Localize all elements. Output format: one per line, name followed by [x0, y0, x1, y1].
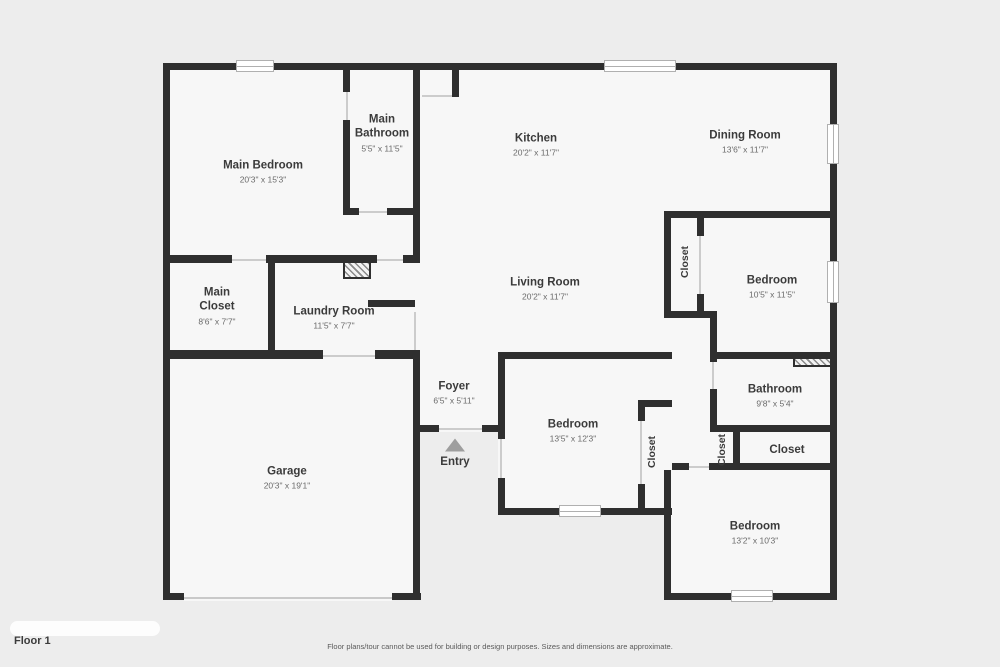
room-dims: 13'6" x 11'7" [709, 145, 781, 156]
room-name: Main Bedroom [223, 159, 303, 173]
wall [664, 211, 837, 218]
room-dims: 20'3" x 15'3" [223, 175, 303, 186]
wall [664, 470, 671, 600]
room-dims: 8'6" x 7'7" [192, 316, 242, 327]
door-opening [712, 362, 714, 389]
window [236, 60, 274, 72]
wall [638, 400, 672, 407]
wall [163, 350, 323, 359]
wall [498, 478, 505, 511]
closet-label-mid: Closet [646, 436, 658, 468]
room-label-main-closet: Main Closet 8'6" x 7'7" [192, 285, 242, 326]
wall [710, 389, 717, 425]
room-name: Main Closet [192, 285, 242, 314]
room-label-bathroom: Bathroom 9'8" x 5'4" [748, 383, 802, 410]
closet-label-ne: Closet [679, 246, 691, 278]
wall [733, 432, 740, 470]
door-opening [232, 259, 266, 261]
window [559, 505, 601, 517]
wall [710, 425, 837, 432]
door-opening [323, 355, 375, 357]
wall [368, 300, 415, 307]
hatched-fixture [793, 357, 832, 367]
room-dims: 10'5" x 11'5" [747, 290, 797, 301]
closet-label-bath: Closet [716, 434, 728, 466]
room-label-dining-room: Dining Room 13'6" x 11'7" [709, 129, 781, 156]
room-dims: 5'5" x 11'5" [346, 143, 418, 154]
room-dims: 9'8" x 5'4" [748, 399, 802, 410]
wall [672, 463, 689, 470]
wall [163, 63, 170, 600]
wall [343, 70, 350, 92]
entry-arrow-icon [445, 439, 465, 452]
disclaimer-text: Floor plans/tour cannot be used for buil… [0, 642, 1000, 651]
room-name: Dining Room [709, 129, 781, 143]
room-label-kitchen: Kitchen 20'2" x 11'7" [513, 132, 559, 159]
room-name: Foyer [433, 380, 474, 394]
room-dims: 13'5" x 12'3" [548, 434, 598, 445]
window [604, 60, 676, 72]
door-opening [640, 421, 642, 484]
hatched-fixture [343, 261, 371, 279]
room-name: Bedroom [730, 520, 780, 534]
door-opening [500, 439, 502, 478]
entry-label: Entry [440, 456, 469, 468]
room-label-bedroom-ne: Bedroom 10'5" x 11'5" [747, 274, 797, 301]
room-label-bedroom-mid: Bedroom 13'5" x 12'3" [548, 418, 598, 445]
door-opening [439, 428, 482, 430]
room-label-living-room: Living Room 20'2" x 11'7" [510, 276, 580, 303]
wall [413, 70, 420, 263]
room-dims: 20'2" x 11'7" [510, 292, 580, 303]
wall [163, 255, 232, 263]
room-dims: 13'2" x 10'3" [730, 536, 780, 547]
door-opening [699, 236, 701, 294]
room-name: Main Bathroom [346, 112, 418, 141]
wall [268, 263, 275, 350]
wall [413, 357, 420, 600]
wall [664, 218, 671, 311]
room-dims: 11'5" x 7'7" [293, 321, 374, 332]
floor-selector-pill[interactable] [10, 621, 160, 636]
room-label-foyer: Foyer 6'5" x 5'11" [433, 380, 474, 407]
door-opening [377, 259, 403, 261]
room-name: Laundry Room [293, 305, 374, 319]
room-dims: 20'3" x 19'1" [264, 481, 311, 492]
wall [498, 352, 672, 359]
room-name: Living Room [510, 276, 580, 290]
floor-plan-canvas: Main Bedroom 20'3" x 15'3" Main Bathroom… [0, 0, 1000, 667]
room-label-main-bedroom: Main Bedroom 20'3" x 15'3" [223, 159, 303, 186]
room-name: Closet [769, 443, 804, 457]
floor-plan-page: Main Bedroom 20'3" x 15'3" Main Bathroom… [0, 0, 1000, 667]
wall [498, 359, 505, 439]
room-dims: 20'2" x 11'7" [513, 148, 559, 159]
room-name: Bedroom [548, 418, 598, 432]
door-opening [359, 211, 387, 213]
door-opening [689, 466, 709, 468]
room-label-bedroom-s: Bedroom 13'2" x 10'3" [730, 520, 780, 547]
door-opening [422, 95, 452, 97]
exterior-area [498, 515, 665, 600]
wall [452, 70, 459, 97]
room-name: Bathroom [748, 383, 802, 397]
wall [697, 218, 704, 236]
room-dims: 6'5" x 5'11" [433, 396, 474, 407]
room-name: Garage [264, 465, 311, 479]
wall [710, 311, 717, 362]
wall [638, 484, 645, 508]
window [827, 124, 839, 164]
door-opening [414, 312, 416, 350]
garage-door-line [184, 597, 392, 599]
wall [709, 463, 837, 470]
room-label-garage: Garage 20'3" x 19'1" [264, 465, 311, 492]
wall [638, 407, 645, 421]
room-label-closet-se: Closet [769, 443, 804, 457]
room-label-main-bathroom: Main Bathroom 5'5" x 11'5" [346, 112, 418, 153]
window [827, 261, 839, 303]
wall [697, 294, 704, 311]
room-name: Kitchen [513, 132, 559, 146]
room-label-laundry-room: Laundry Room 11'5" x 7'7" [293, 305, 374, 332]
room-name: Bedroom [747, 274, 797, 288]
window [731, 590, 773, 602]
